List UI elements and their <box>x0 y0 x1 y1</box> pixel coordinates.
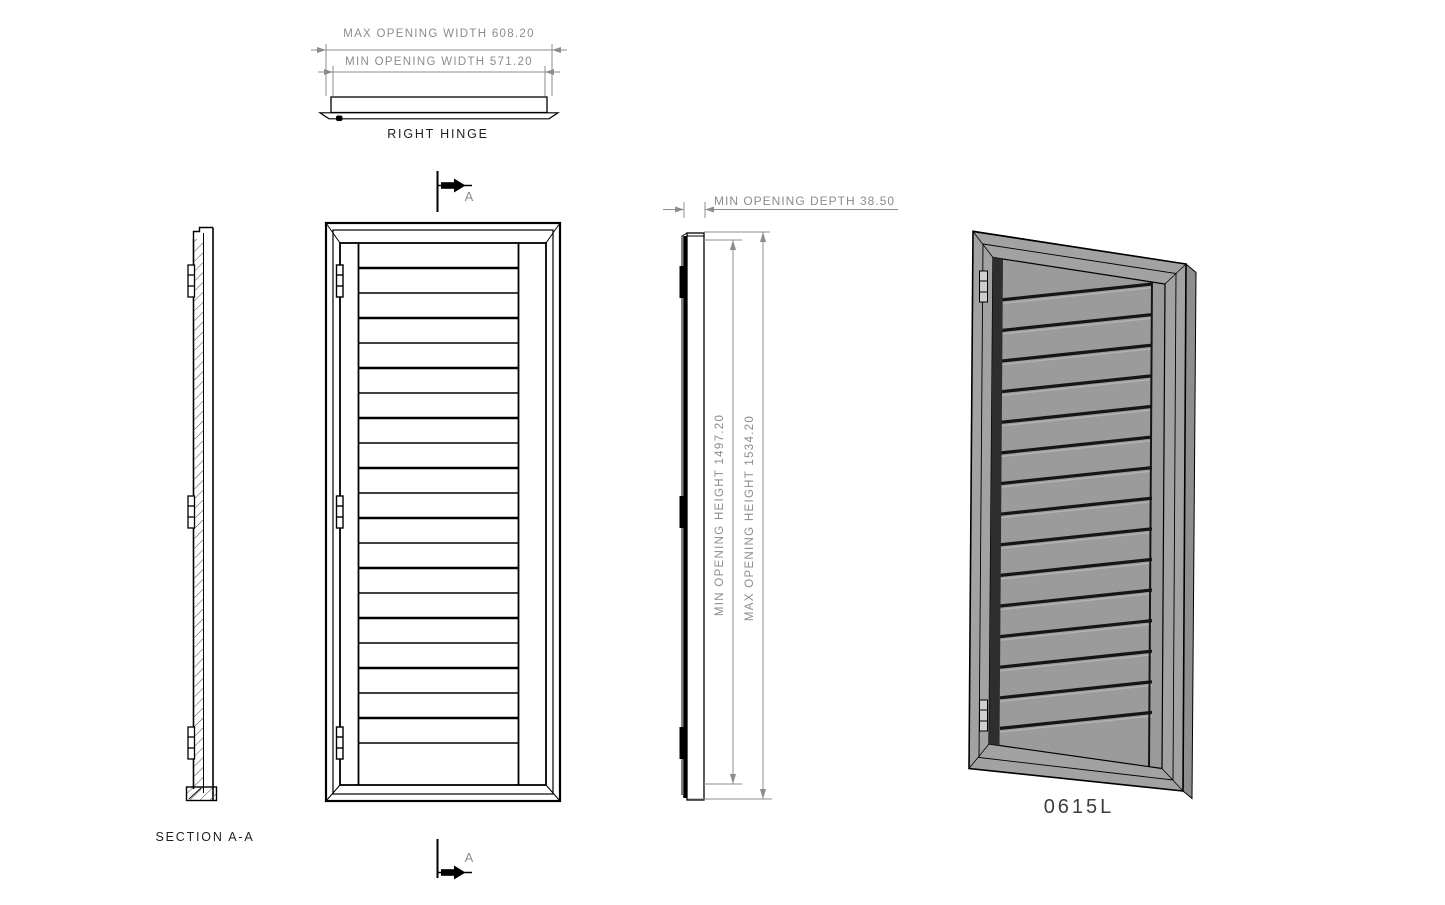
section-view <box>187 228 217 802</box>
front-view <box>326 171 560 880</box>
dim-min-opening-height: MIN OPENING HEIGHT 1497.20 <box>714 365 730 665</box>
depth-dimension-arrows <box>675 207 714 213</box>
section-view-title: SECTION A-A <box>125 830 285 844</box>
dim-min-opening-depth: MIN OPENING DEPTH 38.50 <box>714 194 895 208</box>
dim-max-opening-height: MAX OPENING HEIGHT 1534.20 <box>744 368 760 668</box>
section-marker-letter-top: A <box>459 189 479 204</box>
top-view-dimension-lines <box>311 44 567 96</box>
iso-model-label: 0615L <box>1036 796 1122 819</box>
section-bottom-rail <box>187 787 217 801</box>
dim-min-opening-width: MIN OPENING WIDTH 571.20 <box>330 56 548 68</box>
top-view-panel <box>331 97 547 113</box>
top-view-title: RIGHT HINGE <box>358 127 518 141</box>
top-view-frame <box>320 113 558 119</box>
iso-view <box>969 231 1196 799</box>
section-hatch <box>195 239 204 788</box>
top-view-hinge-knob <box>336 116 343 122</box>
drawing-sheet: MAX OPENING WIDTH 608.20 MIN OPENING WID… <box>0 0 1445 905</box>
section-marker-letter-bottom: A <box>459 850 479 865</box>
dim-max-opening-width: MAX OPENING WIDTH 608.20 <box>330 28 548 40</box>
side-view <box>663 202 898 800</box>
